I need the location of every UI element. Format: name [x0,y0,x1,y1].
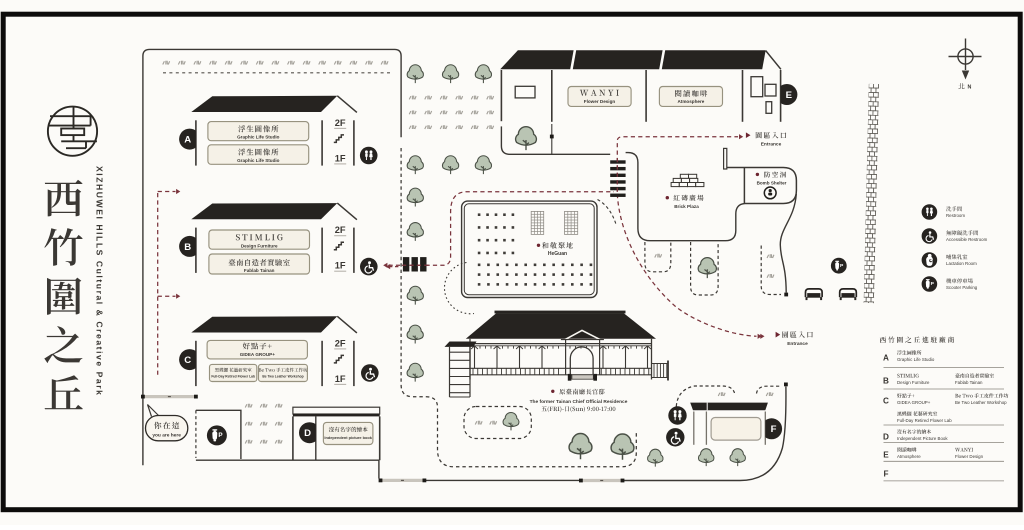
svg-text:Bomb Shelter: Bomb Shelter [757,180,787,185]
svg-text:GIDEA GROUP+: GIDEA GROUP+ [897,400,931,405]
svg-text:Fablab Tainan: Fablab Tainan [955,380,983,385]
svg-text:Entrance: Entrance [787,341,808,347]
svg-text:Accessible Restroom: Accessible Restroom [946,237,988,242]
svg-text:Independent picture book: Independent picture book [324,435,372,440]
svg-text:Design Furniture: Design Furniture [241,243,278,248]
svg-text:F: F [771,424,777,435]
svg-text:P: P [218,432,222,439]
svg-text:Entrance: Entrance [761,142,782,148]
svg-text:Restroom: Restroom [946,213,965,218]
svg-text:2F: 2F [335,225,346,235]
svg-text:1F: 1F [335,374,346,384]
svg-text:HeGuan: HeGuan [548,251,567,257]
svg-text:B: B [883,376,889,385]
svg-text:N: N [968,85,972,91]
svg-text:D: D [304,428,311,439]
svg-text:Lactation Room: Lactation Room [946,261,977,266]
svg-text:Atmosphere: Atmosphere [897,454,921,459]
svg-text:Graphic Life Studio: Graphic Life Studio [237,158,280,163]
svg-text:The former Tainan Chief Offici: The former Tainan Chief Official Residen… [530,399,628,405]
svg-text:XIZHUWEI HILLS Cultural & Crea: XIZHUWEI HILLS Cultural & Creative Park [95,166,105,396]
svg-text:Flower Design: Flower Design [955,454,984,459]
svg-text:Full-Day Retired Flower Lab: Full-Day Retired Flower Lab [211,375,255,379]
svg-text:Atmosphere: Atmosphere [677,99,704,104]
svg-text:E: E [786,90,793,101]
svg-text:Full-Day Retired Flower Lab: Full-Day Retired Flower Lab [897,418,952,423]
svg-text:Independent Picture Book: Independent Picture Book [897,436,948,441]
svg-text:2F: 2F [335,338,346,348]
svg-text:F: F [883,469,888,478]
svg-text:Graphic Life Studio: Graphic Life Studio [237,135,280,140]
svg-text:2F: 2F [335,118,346,128]
svg-text:1F: 1F [335,261,346,271]
svg-text:Be Two Leather Workshop: Be Two Leather Workshop [262,375,303,379]
svg-text:B: B [184,242,191,253]
svg-text:C: C [883,396,889,405]
svg-text:Design Furniture: Design Furniture [897,380,930,385]
svg-text:Be Two Leather Workshop: Be Two Leather Workshop [955,400,1007,405]
svg-text:C: C [184,355,191,366]
svg-text:E: E [883,450,889,459]
svg-text:Flower Design: Flower Design [584,99,616,104]
svg-text:A: A [184,135,191,146]
svg-text:Fablab Tainan: Fablab Tainan [244,268,275,273]
svg-text:D: D [883,432,889,441]
svg-text:GIDEA GROUP+: GIDEA GROUP+ [240,352,275,357]
svg-text:Scooter Parking: Scooter Parking [946,285,978,290]
svg-text:you are here: you are here [152,433,181,439]
svg-text:1F: 1F [335,153,346,163]
svg-text:Brick Plaza: Brick Plaza [674,204,699,209]
svg-text:A: A [883,353,889,362]
svg-text:Graphic Life Studio: Graphic Life Studio [897,357,935,362]
